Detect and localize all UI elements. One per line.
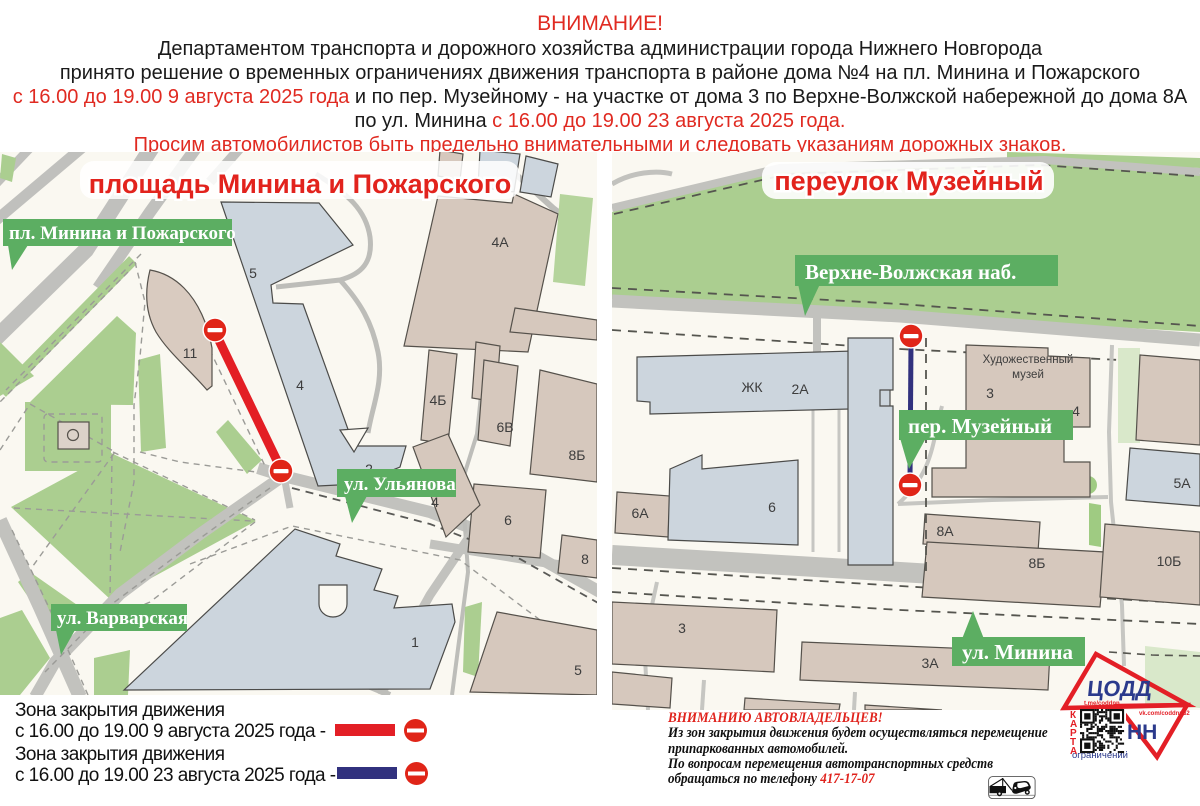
svg-text:4Б: 4Б [430,392,447,408]
svg-text:1: 1 [411,634,419,650]
svg-text:площадь Минина и Пожарского: площадь Минина и Пожарского [89,169,511,199]
svg-text:3: 3 [986,385,994,401]
svg-text:НН: НН [1127,721,1157,744]
svg-text:ЦОДД: ЦОДД [1086,676,1153,701]
svg-text:Художественный: Художественный [983,354,1074,366]
svg-text:Верхне-Волжская наб.: Верхне-Волжская наб. [805,260,1016,284]
svg-text:музей: музей [1012,369,1044,381]
svg-text:t.me/coddnn: t.me/coddnn [1084,701,1120,707]
svg-text:5: 5 [249,265,257,281]
svg-text:vk.com/coddnn52: vk.com/coddnn52 [1139,711,1190,717]
svg-text:ЖК: ЖК [741,379,763,395]
svg-text:4: 4 [1072,403,1080,419]
svg-text:2А: 2А [791,381,809,397]
svg-text:пл. Минина и Пожарского: пл. Минина и Пожарского [9,223,236,244]
svg-text:3А: 3А [921,655,939,671]
svg-text:переулок Музейный: переулок Музейный [774,166,1043,196]
svg-text:6В: 6В [496,419,513,435]
svg-text:6: 6 [504,512,512,528]
svg-text:8Б: 8Б [569,447,586,463]
svg-text:А: А [1070,746,1077,757]
svg-text:пер. Музейный: пер. Музейный [908,414,1052,438]
svg-text:6А: 6А [631,505,649,521]
svg-text:8А: 8А [936,523,954,539]
svg-text:ул. Ульянова: ул. Ульянова [344,474,456,495]
svg-text:4А: 4А [491,234,509,250]
svg-text:8Б: 8Б [1029,555,1046,571]
svg-text:6: 6 [768,499,776,515]
svg-text:5А: 5А [1173,475,1191,491]
svg-text:3: 3 [678,620,686,636]
svg-text:5: 5 [574,662,582,678]
svg-text:ул. Варварская: ул. Варварская [57,608,188,629]
svg-text:4: 4 [296,377,304,393]
svg-text:8: 8 [581,551,589,567]
svg-text:11: 11 [183,345,198,361]
svg-text:10Б: 10Б [1157,553,1182,569]
